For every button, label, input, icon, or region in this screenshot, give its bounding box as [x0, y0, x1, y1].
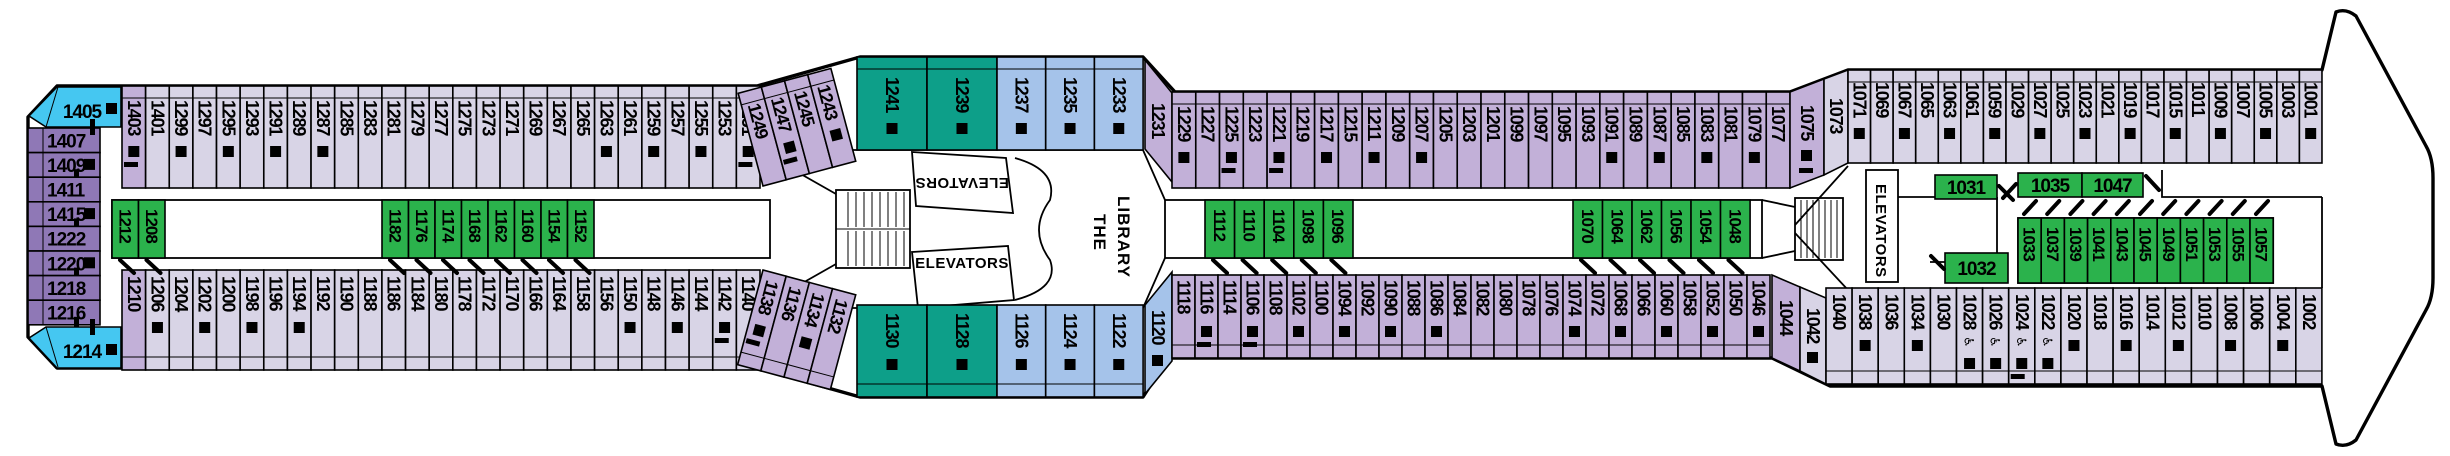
- svg-text:1019: 1019: [2120, 82, 2140, 118]
- cabin-1094: 1094: [1333, 275, 1356, 358]
- cabin-1077: 1077: [1766, 92, 1790, 188]
- svg-text:1023: 1023: [2075, 82, 2095, 118]
- cabin-1008: 1008: [2218, 288, 2244, 384]
- svg-text:1025: 1025: [2052, 82, 2072, 118]
- cabin-1040: 1040: [1826, 288, 1852, 384]
- svg-text:1218: 1218: [47, 279, 86, 300]
- svg-text:1178: 1178: [455, 276, 475, 311]
- cabin-1021: 1021: [2096, 70, 2119, 163]
- svg-text:1297: 1297: [195, 100, 215, 136]
- svg-text:1086: 1086: [1427, 280, 1447, 316]
- svg-text:1403: 1403: [124, 100, 144, 136]
- svg-text:1006: 1006: [2247, 294, 2267, 330]
- cabin-1281: 1281: [382, 86, 406, 188]
- cabin-1156: 1156: [595, 270, 619, 370]
- cabin-1023: 1023: [2074, 70, 2097, 163]
- svg-text:1041: 1041: [2089, 227, 2108, 261]
- cabin-1122: 1122: [1094, 305, 1143, 397]
- svg-text:1164: 1164: [549, 276, 569, 311]
- cabin-1028: 1028♿: [1957, 288, 1983, 384]
- cabin-1223: 1223: [1243, 92, 1267, 188]
- cabin-1215: 1215: [1338, 92, 1362, 188]
- cabin-1038: 1038: [1852, 288, 1878, 384]
- cabin-1275: 1275: [453, 86, 477, 188]
- svg-text:1030: 1030: [1933, 294, 1953, 330]
- cabin-1018: 1018: [2087, 288, 2113, 384]
- cabin-1004: 1004: [2270, 288, 2296, 384]
- svg-text:1031: 1031: [1947, 178, 1987, 199]
- svg-text:1204: 1204: [171, 276, 191, 312]
- svg-text:1018: 1018: [2090, 294, 2110, 330]
- svg-text:1415: 1415: [47, 205, 87, 226]
- cabin-1180: 1180: [429, 270, 453, 370]
- svg-text:1275: 1275: [455, 100, 475, 136]
- svg-text:1092: 1092: [1358, 280, 1378, 316]
- cabin-1273: 1273: [476, 86, 500, 188]
- cabin-1082: 1082: [1471, 275, 1494, 358]
- cabin-1219: 1219: [1291, 92, 1315, 188]
- svg-text:1259: 1259: [644, 100, 664, 136]
- svg-text:1130: 1130: [882, 313, 902, 348]
- cabin-1050: 1050: [1724, 275, 1747, 358]
- svg-text:1052: 1052: [1703, 280, 1723, 316]
- cabin-1209: 1209: [1386, 92, 1410, 188]
- cabin-1267: 1267: [547, 86, 571, 188]
- svg-text:1176: 1176: [412, 209, 431, 242]
- elevators-label-aft-top: ELEVATORS: [915, 174, 1009, 191]
- svg-text:1048: 1048: [1725, 209, 1744, 243]
- cabin-1089: 1089: [1624, 92, 1648, 188]
- cabin-1102: 1102: [1287, 275, 1310, 358]
- svg-text:1122: 1122: [1109, 313, 1129, 348]
- svg-text:1212: 1212: [115, 209, 134, 243]
- top-suites: 12411239: [857, 57, 997, 150]
- svg-text:1028: 1028: [1960, 294, 1980, 330]
- cabin-1289: 1289: [287, 86, 311, 188]
- svg-text:1034: 1034: [1907, 294, 1927, 330]
- cabin-1283: 1283: [358, 86, 382, 188]
- cabin-1293: 1293: [240, 86, 264, 188]
- svg-text:♿: ♿: [2039, 336, 2054, 348]
- cabin-1150: 1150: [618, 270, 642, 370]
- cabin-1093: 1093: [1576, 92, 1600, 188]
- svg-text:1200: 1200: [218, 276, 238, 312]
- svg-text:1077: 1077: [1768, 106, 1788, 142]
- bottom-row-forward: 104010381036103410301028♿1026♿1024♿1022♿…: [1826, 288, 2322, 384]
- svg-text:1014: 1014: [2142, 294, 2162, 330]
- library-label-line2: LIBRARY: [1114, 196, 1133, 278]
- cabin-1042: 1042: [1800, 287, 1826, 384]
- svg-text:1062: 1062: [1637, 209, 1656, 243]
- cabin-1058: 1058: [1678, 275, 1701, 358]
- cabin-1241: 1241: [857, 57, 927, 150]
- svg-text:1070: 1070: [1578, 209, 1597, 243]
- cabin-1009: 1009: [2209, 70, 2232, 163]
- cabin-1205: 1205: [1433, 92, 1457, 188]
- cabin-1068: 1068: [1609, 275, 1632, 358]
- cabin-1073: 1073: [1824, 70, 1848, 175]
- svg-text:1065: 1065: [1917, 82, 1937, 118]
- svg-text:1156: 1156: [596, 276, 616, 311]
- svg-text:1057: 1057: [2252, 227, 2271, 261]
- svg-text:1194: 1194: [289, 276, 309, 311]
- cabin-1079: 1079: [1742, 92, 1766, 188]
- svg-text:1291: 1291: [266, 100, 286, 136]
- cabin-1204: 1204: [169, 270, 193, 370]
- bottom-row-mid: 1118111611141106110811021100109410921090…: [1172, 275, 1770, 358]
- cabin-1044: 1044: [1772, 275, 1800, 371]
- cabin-1005: 1005: [2254, 70, 2277, 163]
- cabin-1229: 1229: [1172, 92, 1196, 188]
- cabin-1253: 1253: [713, 86, 737, 188]
- cabin-1257: 1257: [665, 86, 689, 188]
- svg-text:1082: 1082: [1473, 280, 1493, 316]
- cabin-1036: 1036: [1878, 288, 1904, 384]
- cabin-1071: 1071: [1848, 70, 1871, 163]
- svg-text:1078: 1078: [1519, 280, 1539, 316]
- cabin-1144: 1144: [689, 270, 713, 370]
- cabin-1095: 1095: [1552, 92, 1576, 188]
- cabin-1285: 1285: [335, 86, 359, 188]
- svg-text:1222: 1222: [47, 230, 86, 251]
- svg-text:1089: 1089: [1626, 106, 1646, 142]
- svg-text:1038: 1038: [1855, 294, 1875, 330]
- svg-text:1024: 1024: [2012, 294, 2032, 330]
- cabin-1072: 1072: [1586, 275, 1609, 358]
- cabin-1128: 1128: [927, 305, 997, 397]
- top-row-aft: 1403140112991297129512931291128912871285…: [122, 86, 760, 188]
- cabin-1211: 1211: [1362, 92, 1386, 188]
- cabin-1046: 1046: [1747, 275, 1770, 358]
- svg-text:1039: 1039: [2066, 227, 2085, 261]
- cabin-1010: 1010: [2191, 288, 2217, 384]
- cabin-1006: 1006: [2244, 288, 2270, 384]
- svg-text:1233: 1233: [1109, 77, 1129, 113]
- svg-text:1074: 1074: [1565, 280, 1585, 316]
- svg-text:1020: 1020: [2064, 294, 2084, 330]
- cabin-1235: 1235: [1046, 57, 1095, 150]
- svg-text:1069: 1069: [1872, 82, 1892, 118]
- svg-text:1237: 1237: [1011, 77, 1031, 113]
- cabin-1207: 1207: [1410, 92, 1434, 188]
- svg-text:1011: 1011: [2188, 82, 2208, 117]
- cabin-1188: 1188: [358, 270, 382, 370]
- svg-text:1263: 1263: [596, 100, 616, 136]
- cabin-1075: 1075: [1790, 79, 1824, 188]
- svg-text:1265: 1265: [573, 100, 593, 136]
- cabin-1069: 1069: [1871, 70, 1894, 163]
- svg-text:1154: 1154: [544, 209, 563, 243]
- svg-text:1184: 1184: [407, 276, 427, 311]
- bottom-suites: 11301128: [857, 305, 997, 397]
- svg-text:1066: 1066: [1634, 280, 1654, 316]
- cabin-1118: 1118: [1172, 275, 1195, 358]
- svg-text:1229: 1229: [1174, 106, 1194, 142]
- svg-text:1032: 1032: [1957, 259, 1996, 280]
- cabin-1027: 1027: [2029, 70, 2052, 163]
- svg-text:1160: 1160: [518, 209, 537, 242]
- deck-plan-page: 1407140914111415122212201218121614051214…: [0, 0, 2450, 456]
- svg-text:1035: 1035: [2031, 176, 2071, 197]
- svg-text:1214: 1214: [63, 342, 103, 363]
- cabin-1081: 1081: [1719, 92, 1743, 188]
- cabin-1237: 1237: [997, 57, 1046, 150]
- svg-text:1043: 1043: [2112, 227, 2131, 261]
- cabin-1063: 1063: [1938, 70, 1961, 163]
- svg-text:1083: 1083: [1697, 106, 1717, 142]
- svg-text:1063: 1063: [1940, 82, 1960, 118]
- svg-text:1058: 1058: [1680, 280, 1700, 316]
- svg-text:1283: 1283: [360, 100, 380, 136]
- svg-text:1401: 1401: [147, 100, 167, 136]
- cabin-1091: 1091: [1600, 92, 1624, 188]
- svg-text:1054: 1054: [1696, 209, 1715, 244]
- svg-text:1061: 1061: [1962, 82, 1982, 118]
- cabin-1263: 1263: [595, 86, 619, 188]
- cabin-1084: 1084: [1448, 275, 1471, 358]
- svg-text:1120: 1120: [1148, 310, 1168, 345]
- svg-text:1279: 1279: [407, 100, 427, 136]
- svg-text:♿: ♿: [1987, 336, 2002, 348]
- svg-text:1010: 1010: [2194, 294, 2214, 330]
- cabin-1024: 1024♿: [2009, 288, 2035, 384]
- cabin-1401: 1401: [146, 86, 170, 188]
- cabin-1217: 1217: [1315, 92, 1339, 188]
- cabin-1403: 1403: [122, 86, 146, 188]
- svg-text:1003: 1003: [2278, 82, 2298, 118]
- svg-text:1081: 1081: [1721, 106, 1741, 142]
- svg-text:1267: 1267: [549, 100, 569, 136]
- svg-text:1198: 1198: [242, 276, 262, 311]
- cabin-1130: 1130: [857, 305, 927, 397]
- svg-text:1097: 1097: [1530, 106, 1550, 142]
- cabin-1099: 1099: [1505, 92, 1529, 188]
- svg-text:1208: 1208: [142, 209, 161, 243]
- svg-text:1211: 1211: [1364, 106, 1384, 141]
- cabin-1042: 1042: [1800, 287, 1826, 384]
- svg-text:1207: 1207: [1412, 106, 1432, 142]
- svg-text:1190: 1190: [336, 276, 356, 311]
- cabin-1166: 1166: [524, 270, 548, 370]
- svg-text:1152: 1152: [571, 209, 590, 242]
- cabin-1269: 1269: [524, 86, 548, 188]
- svg-text:1033: 1033: [2020, 227, 2039, 261]
- svg-text:1050: 1050: [1726, 280, 1746, 316]
- svg-text:1277: 1277: [431, 100, 451, 136]
- svg-text:1009: 1009: [2210, 82, 2230, 118]
- bottom-blue: 112611241122: [997, 305, 1143, 397]
- cabin-1194: 1194: [287, 270, 311, 370]
- svg-text:1096: 1096: [1328, 209, 1347, 243]
- svg-text:1079: 1079: [1744, 106, 1764, 142]
- svg-text:1257: 1257: [667, 100, 687, 136]
- svg-text:1055: 1055: [2228, 227, 2247, 261]
- svg-text:1223: 1223: [1245, 106, 1265, 142]
- svg-text:1411: 1411: [47, 181, 86, 202]
- cabin-1227: 1227: [1196, 92, 1220, 188]
- svg-text:1068: 1068: [1611, 280, 1631, 316]
- elevators-label-forward: ELEVATORS: [1872, 184, 1889, 278]
- svg-text:1085: 1085: [1673, 106, 1693, 142]
- svg-text:1088: 1088: [1404, 280, 1424, 316]
- svg-text:1126: 1126: [1011, 313, 1031, 348]
- svg-text:1128: 1128: [952, 313, 972, 348]
- deck-plan: 1407140914111415122212201218121614051214…: [0, 0, 2450, 456]
- svg-text:1201: 1201: [1483, 106, 1503, 142]
- cabin-1222: 1222: [28, 226, 100, 251]
- cabin-1271: 1271: [500, 86, 524, 188]
- elevators-label-aft-bottom: ELEVATORS: [915, 255, 1009, 272]
- svg-text:1053: 1053: [2205, 227, 2224, 261]
- svg-text:1210: 1210: [124, 276, 144, 312]
- svg-text:1206: 1206: [147, 276, 167, 312]
- cabin-1221: 1221: [1267, 92, 1291, 188]
- cabin-1411: 1411: [28, 177, 100, 202]
- cabin-1295: 1295: [217, 86, 241, 188]
- svg-text:1076: 1076: [1542, 280, 1562, 316]
- cabin-1158: 1158: [571, 270, 595, 370]
- svg-text:1150: 1150: [620, 276, 640, 311]
- top-row-forward: 1071106910671065106310611059102910271025…: [1848, 70, 2322, 163]
- svg-text:1087: 1087: [1649, 106, 1669, 142]
- svg-text:1059: 1059: [1985, 82, 2005, 118]
- svg-text:1271: 1271: [502, 100, 522, 136]
- svg-text:1235: 1235: [1060, 77, 1080, 113]
- cabin-1291: 1291: [264, 86, 288, 188]
- svg-text:1108: 1108: [1266, 280, 1286, 315]
- svg-text:1217: 1217: [1317, 106, 1337, 142]
- cabin-1087: 1087: [1647, 92, 1671, 188]
- svg-text:1027: 1027: [2030, 82, 2050, 118]
- svg-text:1093: 1093: [1578, 106, 1598, 142]
- cabin-1148: 1148: [642, 270, 666, 370]
- cabin-1030: 1030: [1930, 288, 1956, 384]
- svg-text:1036: 1036: [1881, 294, 1901, 330]
- cabin-1083: 1083: [1695, 92, 1719, 188]
- cabin-1172: 1172: [476, 270, 500, 370]
- svg-text:1162: 1162: [491, 209, 510, 242]
- svg-text:1209: 1209: [1388, 106, 1408, 142]
- cabin-1088: 1088: [1402, 275, 1425, 358]
- svg-text:1080: 1080: [1496, 280, 1516, 316]
- cabin-1074: 1074: [1563, 275, 1586, 358]
- cabin-1090: 1090: [1379, 275, 1402, 358]
- svg-text:1225: 1225: [1221, 106, 1241, 142]
- svg-text:1095: 1095: [1554, 106, 1574, 142]
- svg-text:1075: 1075: [1797, 105, 1817, 141]
- svg-text:1022: 1022: [2038, 294, 2058, 330]
- svg-text:1091: 1091: [1602, 106, 1622, 142]
- svg-text:1142: 1142: [715, 276, 735, 311]
- cabin-1025: 1025: [2051, 70, 2074, 163]
- cabin-1080: 1080: [1494, 275, 1517, 358]
- svg-text:1118: 1118: [1174, 280, 1194, 314]
- cabin-1259: 1259: [642, 86, 666, 188]
- cabin-1106: 1106: [1241, 275, 1264, 358]
- cabin-1203: 1203: [1457, 92, 1481, 188]
- cabin-1164: 1164: [547, 270, 571, 370]
- cabin-1002: 1002: [2296, 288, 2322, 384]
- svg-text:1227: 1227: [1198, 106, 1218, 142]
- svg-text:1017: 1017: [2143, 82, 2163, 118]
- aft-column: 14071409141114151222122012181216: [28, 128, 100, 333]
- cabin-1066: 1066: [1632, 275, 1655, 358]
- cabin-1015: 1015: [2164, 70, 2187, 163]
- svg-text:1124: 1124: [1060, 313, 1080, 348]
- cabin-1210: 1210: [122, 270, 146, 370]
- svg-text:1202: 1202: [195, 276, 215, 312]
- svg-text:1007: 1007: [2233, 82, 2253, 118]
- svg-text:1182: 1182: [385, 209, 404, 242]
- svg-text:1287: 1287: [313, 100, 333, 136]
- cabin-1044: 1044: [1772, 275, 1800, 371]
- svg-text:1090: 1090: [1381, 280, 1401, 316]
- svg-text:1045: 1045: [2136, 227, 2155, 261]
- svg-text:1084: 1084: [1450, 280, 1470, 316]
- cabin-1019: 1019: [2119, 70, 2142, 163]
- cabin-1022: 1022♿: [2035, 288, 2061, 384]
- cabin-1001: 1001: [2299, 70, 2322, 163]
- svg-text:1060: 1060: [1657, 280, 1677, 316]
- svg-text:1219: 1219: [1293, 106, 1313, 142]
- svg-text:1239: 1239: [952, 77, 972, 113]
- svg-text:1216: 1216: [47, 304, 86, 325]
- svg-text:1037: 1037: [2043, 227, 2062, 261]
- svg-text:1005: 1005: [2256, 82, 2276, 118]
- svg-text:1196: 1196: [266, 276, 286, 311]
- cabin-1078: 1078: [1517, 275, 1540, 358]
- svg-text:1112: 1112: [1210, 209, 1229, 241]
- cabin-1100: 1100: [1310, 275, 1333, 358]
- cabin-1052: 1052: [1701, 275, 1724, 358]
- cabin-1114: 1114: [1218, 275, 1241, 358]
- cabin-1086: 1086: [1425, 275, 1448, 358]
- svg-text:1012: 1012: [2168, 294, 2188, 330]
- cabin-1190: 1190: [335, 270, 359, 370]
- svg-text:1220: 1220: [47, 254, 86, 275]
- svg-text:1405: 1405: [63, 102, 103, 123]
- cabin-1186: 1186: [382, 270, 406, 370]
- svg-text:1001: 1001: [2301, 82, 2321, 118]
- svg-text:1071: 1071: [1849, 82, 1869, 118]
- svg-text:1172: 1172: [478, 276, 498, 311]
- svg-text:1051: 1051: [2182, 227, 2201, 261]
- cabin-1184: 1184: [406, 270, 430, 370]
- svg-text:1241: 1241: [882, 77, 902, 113]
- svg-text:1253: 1253: [715, 100, 735, 136]
- cabin-1206: 1206: [146, 270, 170, 370]
- cabin-1124: 1124: [1046, 305, 1095, 397]
- cabin-1011: 1011: [2187, 70, 2210, 163]
- svg-text:1215: 1215: [1340, 106, 1360, 142]
- svg-text:1289: 1289: [289, 100, 309, 136]
- svg-text:1192: 1192: [313, 276, 333, 311]
- cabin-1192: 1192: [311, 270, 335, 370]
- svg-text:1285: 1285: [336, 100, 356, 136]
- cabin-1012: 1012: [2165, 288, 2191, 384]
- cabin-1007: 1007: [2232, 70, 2255, 163]
- svg-text:1056: 1056: [1666, 209, 1685, 243]
- cabin-1239: 1239: [927, 57, 997, 150]
- svg-text:1047: 1047: [2093, 176, 2132, 197]
- cabin-1116: 1116: [1195, 275, 1218, 358]
- cabin-1146: 1146: [665, 270, 689, 370]
- svg-text:1044: 1044: [1776, 300, 1796, 336]
- svg-text:1295: 1295: [218, 100, 238, 136]
- cabin-1279: 1279: [406, 86, 430, 188]
- svg-text:1098: 1098: [1299, 209, 1318, 243]
- svg-text:1042: 1042: [1803, 308, 1823, 344]
